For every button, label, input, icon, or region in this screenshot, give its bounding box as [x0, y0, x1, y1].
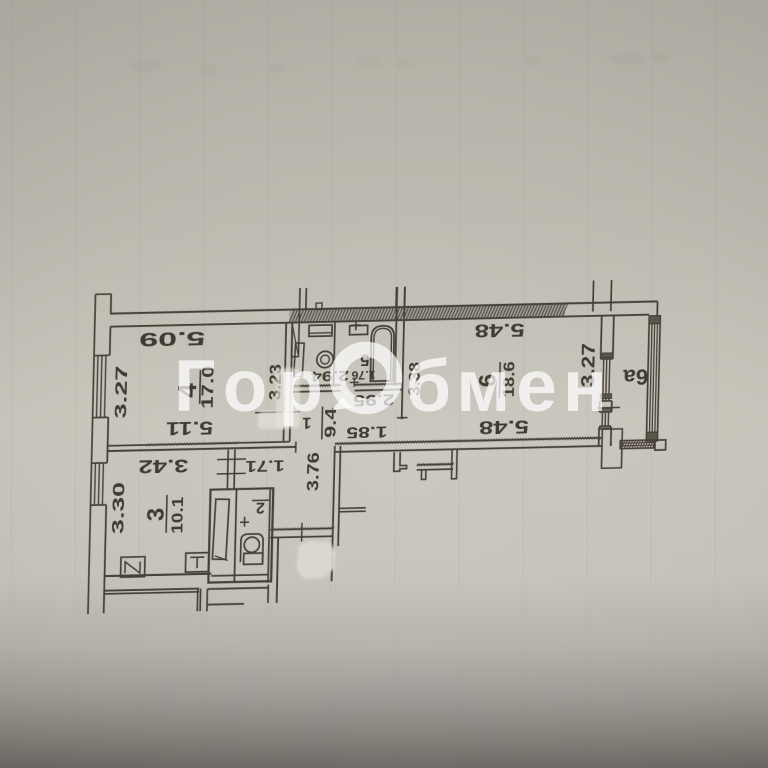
svg-text:2: 2 — [256, 499, 265, 516]
svg-text:3: 3 — [143, 508, 170, 522]
svg-text:1.71: 1.71 — [245, 456, 285, 474]
svg-text:6a: 6a — [622, 364, 648, 390]
svg-text:3.42: 3.42 — [138, 455, 188, 476]
svg-text:3.76: 3.76 — [304, 452, 323, 491]
svg-text:1.85: 1.85 — [346, 423, 388, 441]
svg-text:10.1: 10.1 — [169, 496, 187, 533]
svg-text:3.30: 3.30 — [108, 482, 128, 534]
svg-text:1.76: 1.76 — [351, 368, 376, 383]
svg-text:9.4: 9.4 — [323, 408, 341, 439]
svg-text:5.48: 5.48 — [474, 319, 524, 340]
svg-text:бмен: бмен — [406, 346, 607, 427]
svg-text:Гор: Гор — [174, 346, 323, 427]
svg-text:3.27: 3.27 — [111, 365, 131, 418]
